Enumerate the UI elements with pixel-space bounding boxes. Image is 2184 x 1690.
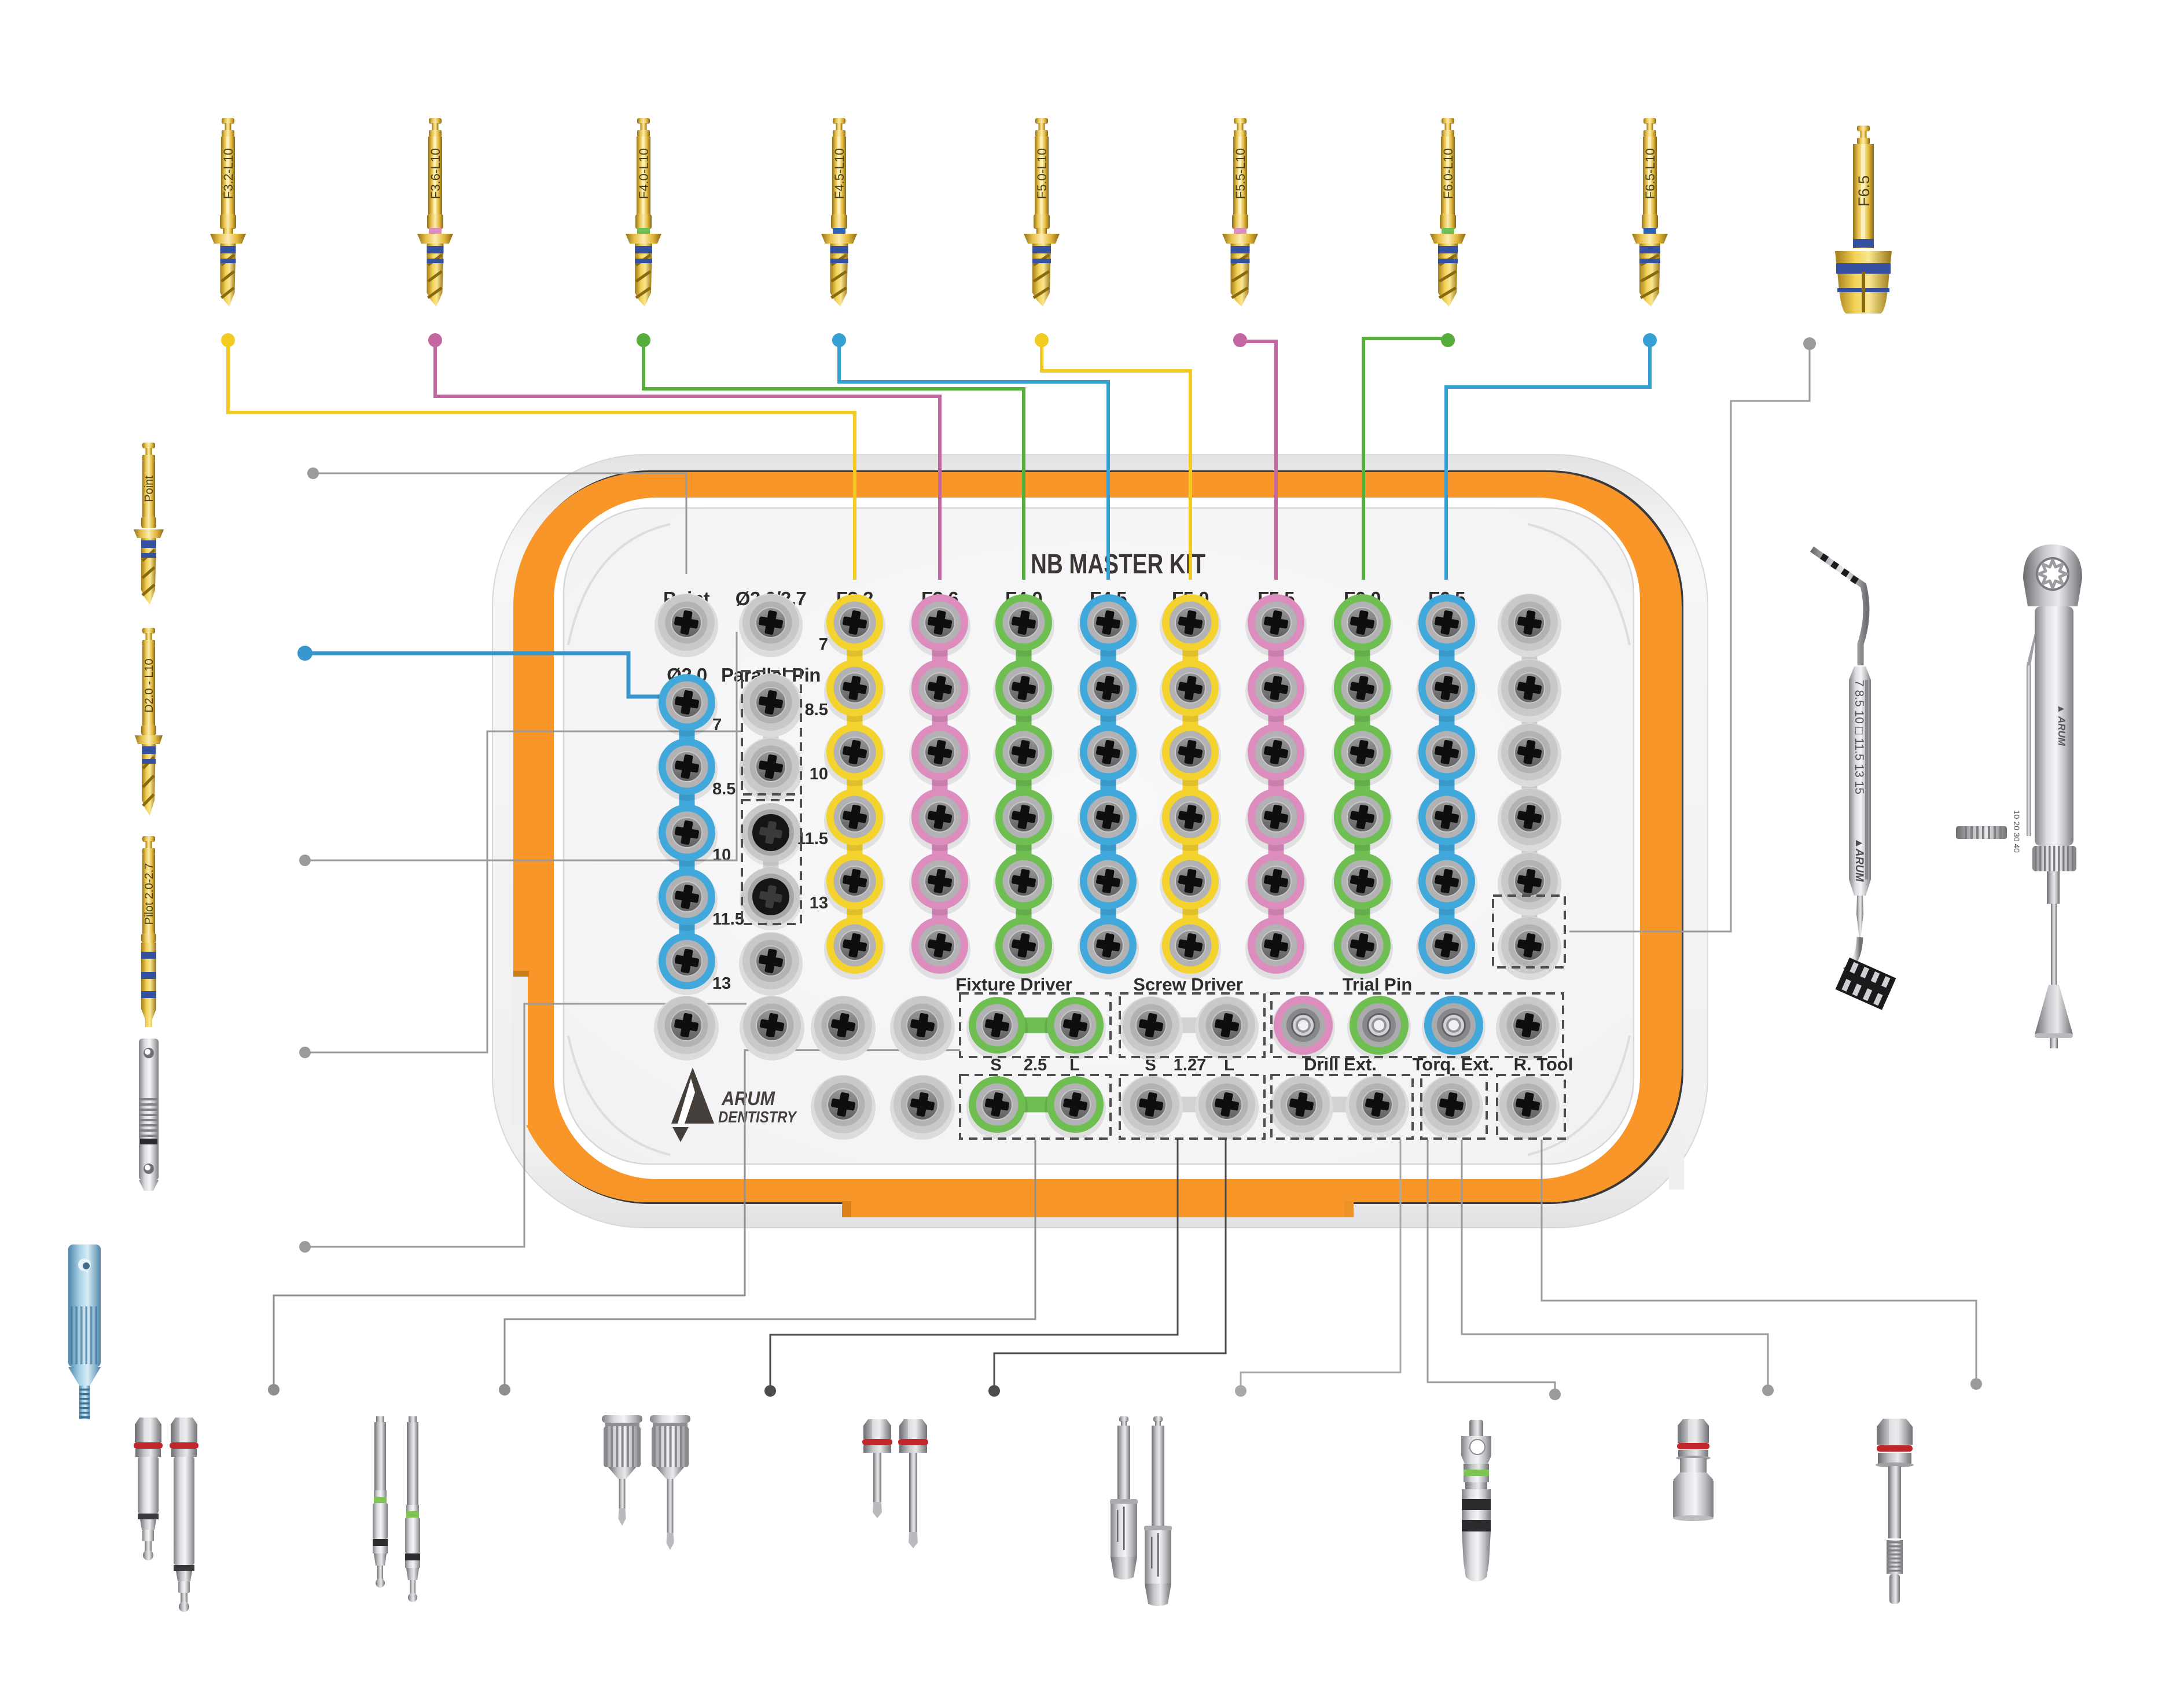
svg-text:F3.6-L10: F3.6-L10 — [428, 148, 443, 199]
svg-text:8.5: 8.5 — [712, 780, 736, 798]
svg-text:▲ARUM: ▲ARUM — [1853, 838, 1865, 882]
svg-text:D2.0 - L10: D2.0 - L10 — [143, 658, 156, 712]
svg-text:1.27: 1.27 — [1174, 1056, 1206, 1074]
svg-text:13: 13 — [712, 974, 731, 993]
svg-text:F6.5: F6.5 — [1855, 175, 1873, 207]
svg-text:NB MASTER KIT: NB MASTER KIT — [1031, 549, 1205, 580]
svg-text:10: 10 — [712, 846, 731, 864]
svg-text:2.5: 2.5 — [1024, 1056, 1047, 1074]
svg-text:F3.2-L10: F3.2-L10 — [221, 148, 236, 199]
svg-text:Point: Point — [143, 476, 156, 502]
svg-text:F6.0-L10: F6.0-L10 — [1441, 148, 1455, 199]
svg-text:11.5: 11.5 — [712, 910, 744, 929]
svg-text:F5.0-L10: F5.0-L10 — [1035, 148, 1049, 199]
svg-text:F4.0-L10: F4.0-L10 — [637, 148, 651, 199]
svg-text:8.5: 8.5 — [805, 701, 828, 719]
svg-text:7 8.5 10 □ 11.5 13 15: 7 8.5 10 □ 11.5 13 15 — [1852, 680, 1866, 794]
svg-text:▲ ARUM: ▲ ARUM — [2056, 704, 2067, 746]
svg-text:Pilot 2.0-2.7: Pilot 2.0-2.7 — [143, 863, 156, 925]
svg-text:10: 10 — [810, 765, 828, 783]
svg-text:F5.5-L10: F5.5-L10 — [1233, 148, 1248, 199]
svg-text:F6.5-L10: F6.5-L10 — [1643, 148, 1657, 199]
svg-text:13: 13 — [810, 894, 828, 912]
svg-text:ARUM: ARUM — [721, 1088, 775, 1110]
svg-text:DENTISTRY: DENTISTRY — [718, 1108, 797, 1126]
svg-text:F4.5-L10: F4.5-L10 — [832, 148, 847, 199]
svg-text:10 20 30 40: 10 20 30 40 — [2012, 810, 2021, 853]
